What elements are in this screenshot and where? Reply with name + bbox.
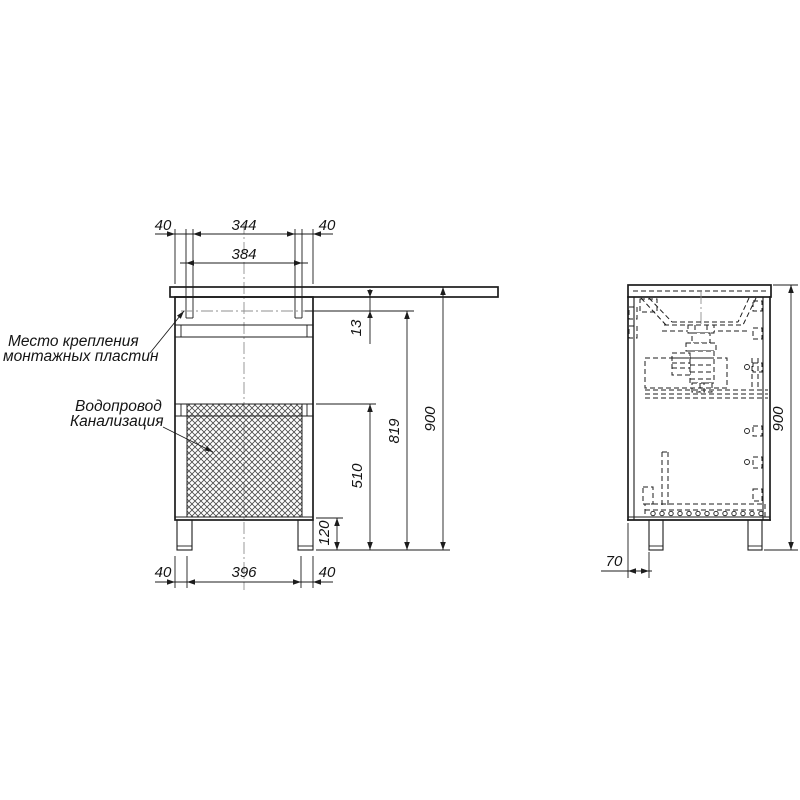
dim-cutout-to-floor-text: 510 bbox=[349, 463, 366, 489]
front-view: 40 344 40 384 13 510 bbox=[3, 217, 498, 590]
side-leg-front bbox=[649, 520, 663, 550]
label-plumbing-line2: Канализация bbox=[70, 413, 164, 430]
side-bottom-rail bbox=[645, 504, 765, 517]
front-countertop bbox=[170, 287, 498, 297]
front-leg-right bbox=[298, 520, 313, 550]
dim-leg-height: 120 bbox=[316, 518, 343, 550]
dim-leg-height-text: 120 bbox=[316, 520, 333, 546]
dim-plate-to-floor: 819 bbox=[386, 311, 410, 550]
dim-total-height-side-text: 900 bbox=[770, 406, 787, 432]
dim-leg-spacing: 396 bbox=[231, 564, 257, 581]
side-siphon-outlet bbox=[672, 353, 690, 375]
dim-total-height-front: 900 bbox=[422, 287, 446, 550]
front-plumbing-cutout-hatch bbox=[187, 404, 302, 517]
dim-plate-span-text: 384 bbox=[231, 246, 256, 263]
side-left-fittings bbox=[629, 299, 657, 338]
side-lower-drawer bbox=[643, 452, 668, 508]
drawing-svg: 40 344 40 384 13 510 bbox=[0, 0, 800, 800]
side-right-fittings bbox=[745, 301, 763, 501]
dim-top-right-offset: 40 bbox=[319, 217, 336, 234]
dim-bottom-left-offset: 40 bbox=[155, 564, 172, 581]
dim-plate-to-floor-text: 819 bbox=[386, 418, 403, 444]
dim-bottom-right-offset: 40 bbox=[319, 564, 336, 581]
dim-total-height-side: 900 bbox=[764, 285, 798, 550]
dim-countertop-to-plate-text: 13 bbox=[348, 319, 365, 336]
dim-leg-front-inset: 70 bbox=[601, 523, 652, 578]
label-mounting-plates-line2: монтажных пластин bbox=[3, 348, 159, 365]
side-leg-back bbox=[748, 520, 762, 550]
dim-plate-span: 384 bbox=[180, 246, 308, 266]
side-view: 900 70 bbox=[601, 285, 798, 578]
dim-bottom-chain: 40 396 40 bbox=[155, 556, 336, 588]
dim-top-left-offset: 40 bbox=[155, 217, 172, 234]
label-mounting-plates: Место крепления монтажных пластин bbox=[3, 311, 184, 365]
label-mounting-plates-leader bbox=[150, 311, 184, 353]
side-legs bbox=[649, 520, 762, 550]
dim-leg-front-inset-text: 70 bbox=[606, 553, 623, 570]
dim-plate-spacing: 344 bbox=[231, 217, 256, 234]
technical-drawing: 40 344 40 384 13 510 bbox=[0, 0, 800, 800]
dim-total-height-front-text: 900 bbox=[422, 406, 439, 432]
front-legs bbox=[177, 520, 313, 550]
front-leg-left bbox=[177, 520, 192, 550]
side-bracket bbox=[643, 487, 653, 504]
